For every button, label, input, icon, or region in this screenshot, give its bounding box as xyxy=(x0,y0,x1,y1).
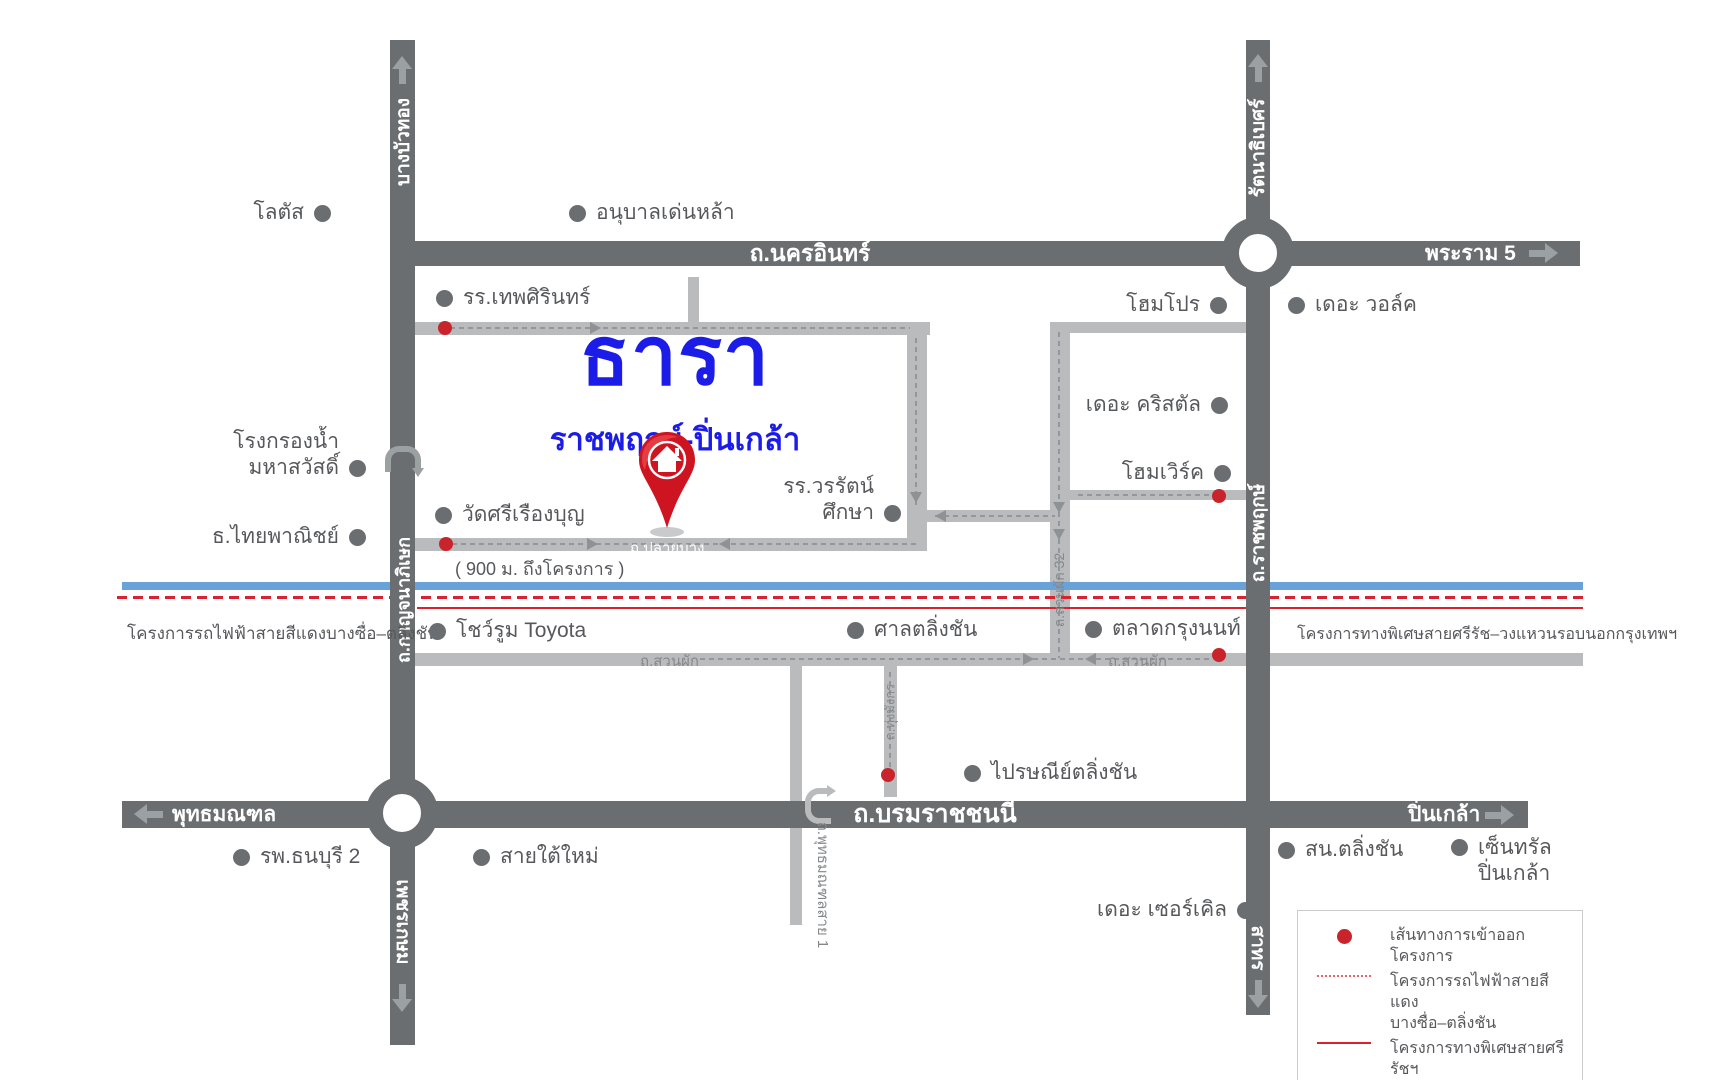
landmark-label: เดอะ วอล์ค xyxy=(1315,292,1417,318)
landmark-dot-icon xyxy=(436,290,453,307)
road-label-pinklao: ปิ่นเกล้า xyxy=(1408,801,1480,828)
landmark: ธ.ไทยพาณิชย์ xyxy=(212,524,366,550)
expressway-line xyxy=(417,607,1583,609)
route-arrow-icon xyxy=(1053,502,1065,513)
landmark-label: โชว์รูม Toyota xyxy=(456,618,586,644)
landmark-dot-icon xyxy=(1210,297,1227,314)
route-arrow-icon xyxy=(587,538,598,550)
project-access-dot-icon xyxy=(1212,489,1226,503)
landmark-label: โลตัส xyxy=(253,200,304,226)
access-route xyxy=(915,338,917,508)
landmark: วัดศรีเรืองบุญ xyxy=(435,502,585,528)
road-label-nakhon-in: ถ.นครอินทร์ xyxy=(700,241,920,266)
landmark: อนุบาลเด่นหล้า xyxy=(569,200,735,226)
road-label-phetkasem: เพชรเกษม xyxy=(388,879,418,964)
project-pin-icon xyxy=(634,430,700,545)
road-label-borom: ถ.บรมราชชนนี xyxy=(835,801,1035,828)
road-label-rama5: พระราม 5 xyxy=(1425,241,1516,266)
landmark: โฮมเวิร์ค xyxy=(1122,460,1231,486)
project-name: ธารา xyxy=(500,312,850,402)
road-label-thung-mangkon: ถ.ทุ่งมังกร xyxy=(880,684,901,740)
project-access-dot-icon xyxy=(1212,648,1226,662)
u-turn-icon xyxy=(805,788,831,824)
landmark-dot-icon xyxy=(349,529,366,546)
landmark-label: รพ.ธนบุรี 2 xyxy=(260,844,360,870)
landmark-dot-icon xyxy=(1214,465,1231,482)
landmark-dot-icon xyxy=(1237,902,1254,919)
landmark-label: วัดศรีเรืองบุญ xyxy=(462,502,585,528)
road-label-suan-phak-east: ถ.สวนผัก xyxy=(1108,649,1167,673)
landmark-label: รร.วรรัตน์ ศึกษา xyxy=(783,474,874,526)
landmark-dot-icon xyxy=(1288,297,1305,314)
project-access-dot-icon xyxy=(438,321,452,335)
landmark-dot-icon xyxy=(964,765,981,782)
landmark-dot-icon xyxy=(569,205,586,222)
legend-label: โครงการทางพิเศษสายศรีรัชฯ xyxy=(1390,1038,1574,1080)
landmark-label: เซ็นทรัล ปิ่นเกล้า xyxy=(1478,835,1552,887)
landmark-dot-icon xyxy=(1278,842,1295,859)
u-turn-icon xyxy=(385,446,421,472)
route-arrow-icon xyxy=(1085,653,1096,665)
road-label-suan-phak-west: ถ.สวนผัก xyxy=(640,649,699,673)
distance-note: ( 900 ม. ถึงโครงการ ) xyxy=(455,554,624,583)
roundabout-nakhon-in xyxy=(1222,217,1294,289)
landmark-label: โรงกรองน้ำ มหาสวัสดิ์ xyxy=(233,429,339,481)
route-arrow-icon xyxy=(1053,529,1065,540)
landmark: รพ.ธนบุรี 2 xyxy=(233,844,360,870)
roundabout-borom xyxy=(366,777,438,849)
landmark: สน.ตลิ่งชัน xyxy=(1278,837,1403,863)
landmark-label: อนุบาลเด่นหล้า xyxy=(596,200,735,226)
landmark-dot-icon xyxy=(1085,621,1102,638)
landmark-dot-icon xyxy=(884,505,901,522)
landmark-dot-icon xyxy=(1451,839,1468,856)
landmark-label: โฮมโปร xyxy=(1126,292,1200,318)
legend: เส้นทางการเข้าออกโครงการโครงการรถไฟฟ้าสา… xyxy=(1297,910,1583,1080)
landmark-label: ธ.ไทยพาณิชย์ xyxy=(212,524,339,550)
route-arrow-icon xyxy=(1023,653,1034,665)
project-access-dot-icon xyxy=(881,768,895,782)
legend-red-dot-icon xyxy=(1298,925,1390,944)
landmark: โฮมโปร xyxy=(1126,292,1227,318)
landmark: เดอะ เซอร์เคิล xyxy=(1097,897,1254,923)
landmark-label: สายใต้ใหม่ xyxy=(500,844,599,870)
access-route xyxy=(1078,494,1213,496)
landmark-label: สน.ตลิ่งชัน xyxy=(1305,837,1403,863)
landmark-label: เดอะ คริสตัล xyxy=(1086,392,1201,418)
landmark: ไปรษณีย์ตลิ่งชัน xyxy=(964,760,1137,786)
landmark-label: โฮมเวิร์ค xyxy=(1122,460,1204,486)
route-arrow-icon xyxy=(910,492,922,503)
road-project-loop-right xyxy=(907,322,927,550)
landmark-label: ศาลตลิ่งชัน xyxy=(874,617,977,643)
road-nakhon-in xyxy=(390,241,1580,266)
canal-line xyxy=(122,582,1583,590)
landmark-label: เดอะ เซอร์เคิล xyxy=(1097,897,1227,923)
landmark: รร.วรรัตน์ ศึกษา xyxy=(783,474,901,526)
landmark: เดอะ วอล์ค xyxy=(1288,292,1417,318)
legend-label: เส้นทางการเข้าออกโครงการ xyxy=(1390,925,1574,967)
road-label-phutthamonthon: พุทธมณฑล xyxy=(172,801,276,828)
landmark: โชว์รูม Toyota xyxy=(429,618,586,644)
road-label-rattanathibet: รัตนาธิเบศร์ xyxy=(1243,99,1273,198)
road-label-sathon: สาทร xyxy=(1243,926,1273,971)
legend-red-solid-line-icon xyxy=(1298,1038,1390,1044)
expressway-note: โครงการทางพิเศษสายศรีรัช–วงแหวนรอบนอกกรุ… xyxy=(1297,622,1677,647)
landmark: สายใต้ใหม่ xyxy=(473,844,599,870)
landmark-dot-icon xyxy=(847,622,864,639)
access-route xyxy=(935,515,1055,517)
road-label-bang-bua-thong: บางบัวทอง xyxy=(388,98,418,186)
landmark: โลตัส xyxy=(253,200,331,226)
landmark-dot-icon xyxy=(349,460,366,477)
red-rail-line xyxy=(117,596,1583,599)
legend-row: เส้นทางการเข้าออกโครงการ xyxy=(1298,925,1574,967)
landmark-dot-icon xyxy=(1211,397,1228,414)
route-arrow-icon xyxy=(590,322,601,334)
project-access-dot-icon xyxy=(439,537,453,551)
road-phutthamonthon-sai-1 xyxy=(790,666,802,925)
landmark-dot-icon xyxy=(314,205,331,222)
landmark-dot-icon xyxy=(473,849,490,866)
route-arrow-icon xyxy=(719,538,730,550)
landmark-label: รร.เทพศิรินทร์ xyxy=(463,285,590,311)
landmark-label: ไปรษณีย์ตลิ่งชัน xyxy=(991,760,1137,786)
legend-red-dashed-line-icon xyxy=(1298,971,1390,977)
project-location-map: ถ.นครอินทร์ พระราม 5 ถ.บรมราชชนนี พุทธมณ… xyxy=(0,0,1720,1080)
road-label-suan-phak-32: ถ.สวนผัก 32 xyxy=(1049,553,1071,627)
landmark-label: ตลาดกรุงนนท์ xyxy=(1112,616,1241,642)
landmark: ศาลตลิ่งชัน xyxy=(847,617,977,643)
landmark: เซ็นทรัล ปิ่นเกล้า xyxy=(1451,835,1552,887)
landmark: โรงกรองน้ำ มหาสวัสดิ์ xyxy=(233,429,366,481)
landmark: ตลาดกรุงนนท์ xyxy=(1085,616,1241,642)
legend-row: โครงการรถไฟฟ้าสายสีแดง บางซื่อ–ตลิ่งชัน xyxy=(1298,971,1574,1034)
landmark-dot-icon xyxy=(429,623,446,640)
road-label-phutthamonthon-sai-1: ถ.พุทธมณฑลสาย 1 xyxy=(811,822,835,949)
route-arrow-icon xyxy=(935,510,946,522)
landmark-dot-icon xyxy=(435,507,452,524)
legend-row: โครงการทางพิเศษสายศรีรัชฯ xyxy=(1298,1038,1574,1080)
landmark: รร.เทพศิรินทร์ xyxy=(436,285,590,311)
road-label-ratchaphruek: ถ.ราชพฤกษ์ xyxy=(1243,484,1273,583)
landmark-dot-icon xyxy=(233,849,250,866)
red-rail-note: โครงการรถไฟฟ้าสายสีแดงบางซื่อ–ตลิ่งชัน xyxy=(127,620,439,647)
landmark: เดอะ คริสตัล xyxy=(1086,392,1228,418)
road-homepro-soi xyxy=(1068,322,1248,333)
legend-label: โครงการรถไฟฟ้าสายสีแดง บางซื่อ–ตลิ่งชัน xyxy=(1390,971,1574,1034)
